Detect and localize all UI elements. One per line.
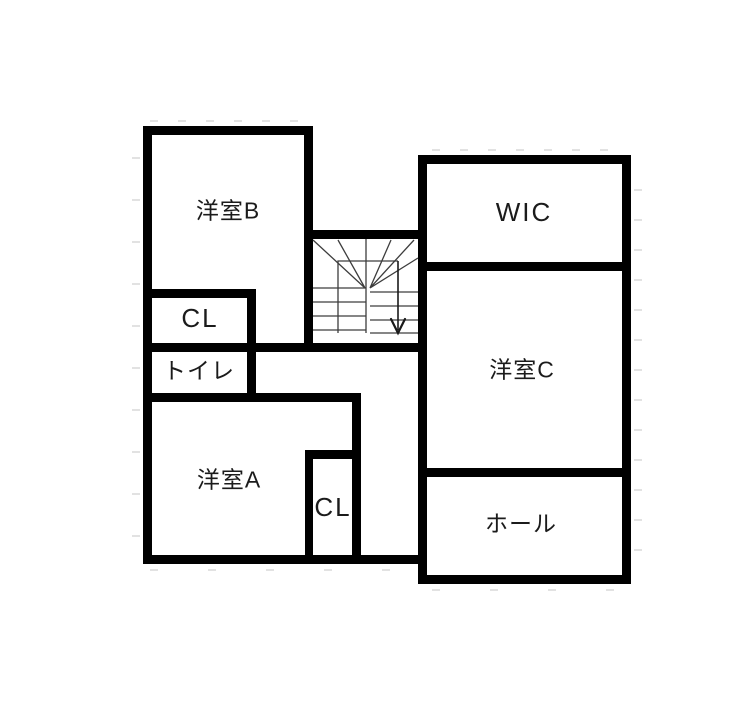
wall-closet-lower-top (305, 450, 361, 459)
room-label-closet-upper: CL (181, 305, 218, 331)
wall-room-b-top (143, 126, 313, 135)
grid-ticks (132, 121, 642, 590)
wall-room-a-right (352, 393, 361, 564)
wall-right-block-left (418, 155, 427, 584)
grid-ticks-path (132, 121, 642, 590)
wall-corridor-stairs-bottom (143, 343, 427, 352)
walls (143, 126, 631, 584)
staircase (313, 239, 418, 333)
wall-closet-lower-left (305, 450, 313, 564)
room-label-hall: ホール (485, 513, 557, 536)
wall-left-block-bottom (143, 555, 427, 564)
wall-wic-bottom (418, 262, 631, 271)
room-label-room-b: 洋室B (196, 200, 260, 223)
stairs-down-arrow-icon (391, 261, 405, 333)
room-label-room-a: 洋室A (197, 469, 261, 492)
floor-plan-drawing (0, 0, 750, 706)
room-label-toilet: トイレ (163, 360, 235, 383)
room-label-closet-lower: CL (314, 494, 351, 520)
wall-wic-top (418, 155, 631, 164)
stairs-left-steps (313, 288, 366, 330)
wall-outer-right (622, 155, 631, 584)
room-label-wic: WIC (496, 199, 553, 225)
room-label-room-c: 洋室C (489, 359, 555, 382)
wall-toilet-bottom-room-a-top (143, 393, 361, 402)
floor-plan-page: 洋室B WIC CL トイレ 洋室A CL 洋室C ホール (0, 0, 750, 706)
wall-closet-upper-top (143, 289, 256, 298)
wall-stairs-top (304, 230, 427, 239)
wall-hall-bottom (418, 575, 631, 584)
wall-room-c-bottom (418, 468, 631, 477)
